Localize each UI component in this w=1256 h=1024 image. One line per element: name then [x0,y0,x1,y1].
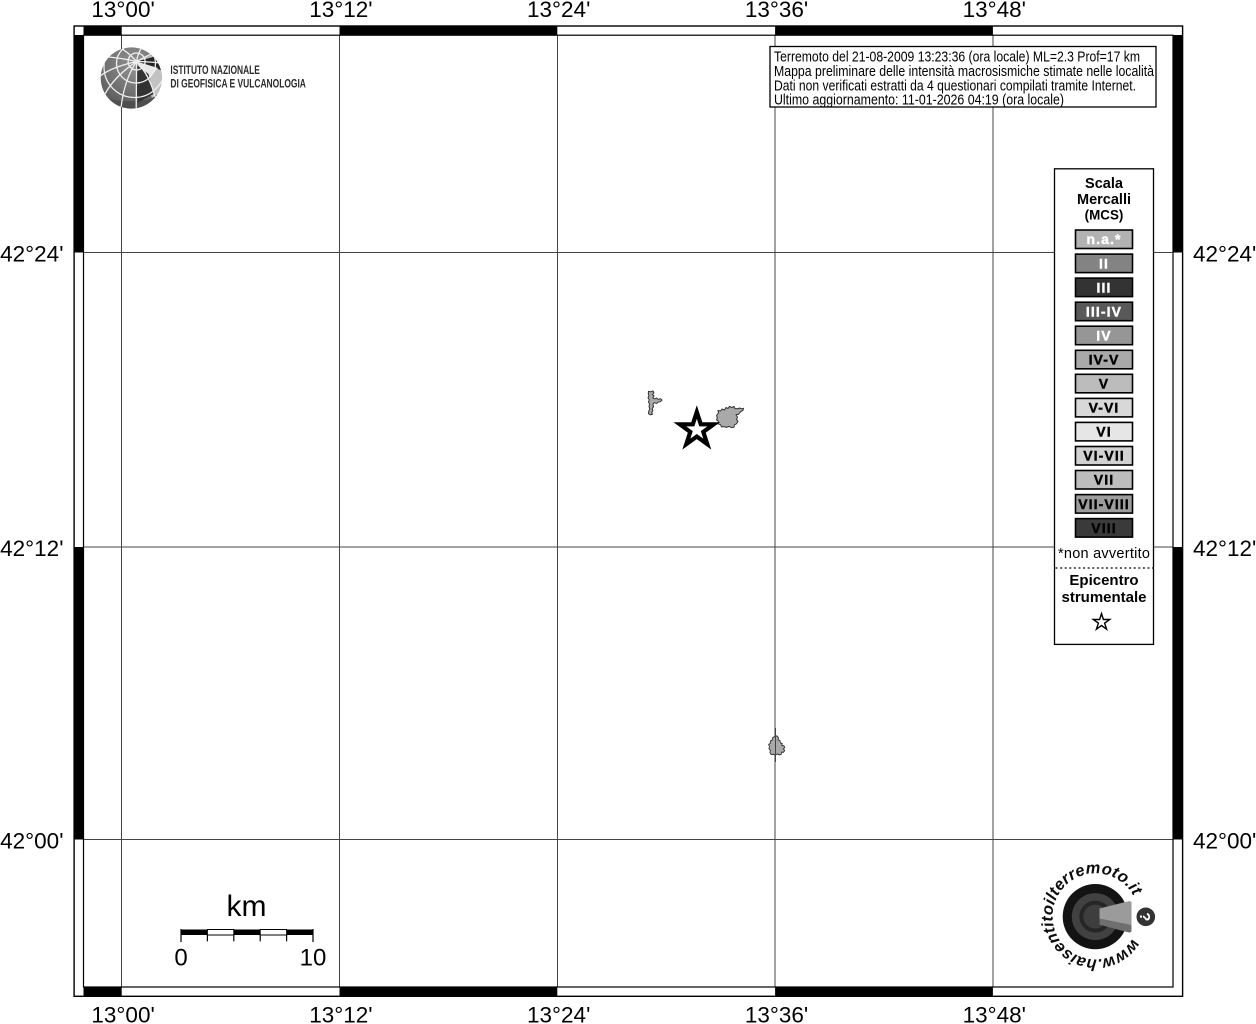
svg-text:VII: VII [1094,472,1114,488]
svg-text:III: III [1097,279,1112,295]
svg-text:?: ? [1136,912,1153,921]
svg-text:IV-V: IV-V [1089,352,1120,368]
svg-text:13°24': 13°24' [527,1003,590,1024]
svg-text:*non avvertito: *non avvertito [1058,546,1150,562]
svg-text:VII-VIII: VII-VIII [1078,496,1130,512]
svg-text:42°12': 42°12' [0,536,63,561]
svg-text:(MCS): (MCS) [1085,207,1124,222]
svg-text:VIII: VIII [1091,520,1116,536]
svg-text:Epicentro: Epicentro [1069,572,1138,589]
svg-text:13°12': 13°12' [309,1003,372,1024]
svg-text:13°00': 13°00' [91,1003,154,1024]
svg-text:13°48': 13°48' [963,0,1026,22]
svg-text:VI-VII: VI-VII [1083,448,1125,464]
svg-text:n.a.*: n.a.* [1086,231,1121,247]
svg-text:13°00': 13°00' [91,0,154,22]
svg-text:0: 0 [174,945,187,972]
svg-text:13°36': 13°36' [745,0,808,22]
svg-text:Mercalli: Mercalli [1077,192,1131,208]
svg-text:13°12': 13°12' [309,0,372,22]
svg-text:42°00': 42°00' [1193,829,1256,854]
svg-text:13°36': 13°36' [745,1003,808,1024]
svg-text:42°24': 42°24' [0,242,63,267]
svg-text:strumentale: strumentale [1061,589,1146,606]
svg-text:V-VI: V-VI [1089,400,1120,416]
svg-text:IV: IV [1096,327,1111,343]
svg-text:10: 10 [300,945,327,972]
svg-text:42°24': 42°24' [1193,242,1256,267]
svg-text:II: II [1099,255,1109,271]
svg-text:VI: VI [1096,424,1111,440]
svg-text:13°24': 13°24' [527,0,590,22]
svg-text:V: V [1099,376,1109,392]
svg-text:Ultimo aggiornamento: 11-01-20: Ultimo aggiornamento: 11-01-2026 04:19 (… [774,91,1064,108]
svg-text:13°48': 13°48' [963,1003,1026,1024]
svg-text:III-IV: III-IV [1086,303,1122,319]
svg-text:DI GEOFISICA E VULCANOLOGIA: DI GEOFISICA E VULCANOLOGIA [170,77,306,91]
svg-text:ISTITUTO NAZIONALE: ISTITUTO NAZIONALE [170,63,260,77]
svg-text:42°00': 42°00' [0,829,63,854]
svg-text:km: km [227,890,267,923]
svg-text:42°12': 42°12' [1193,536,1256,561]
svg-text:Scala: Scala [1085,176,1124,192]
